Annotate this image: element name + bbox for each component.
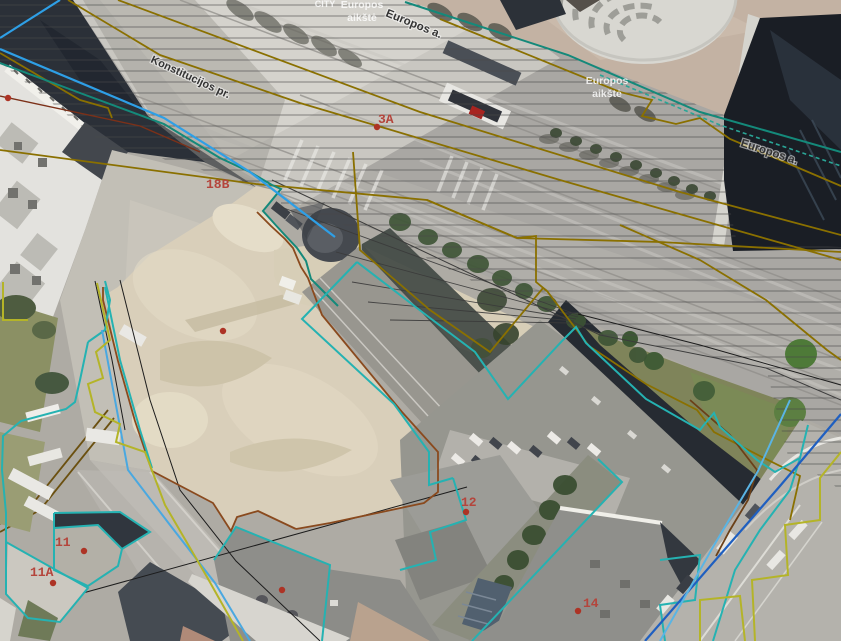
svg-text:Europos: Europos bbox=[341, 0, 384, 11]
svg-text:11: 11 bbox=[55, 535, 71, 550]
svg-text:12: 12 bbox=[461, 495, 477, 510]
svg-text:Europos: Europos bbox=[586, 75, 629, 87]
svg-text:11A: 11A bbox=[30, 565, 54, 580]
svg-text:aikštė: aikštė bbox=[592, 88, 622, 100]
svg-text:3A: 3A bbox=[378, 112, 394, 127]
svg-text:18B: 18B bbox=[206, 177, 230, 192]
svg-text:CITY: CITY bbox=[315, 0, 336, 9]
svg-text:aikštė: aikštė bbox=[347, 12, 377, 24]
svg-text:14: 14 bbox=[583, 596, 599, 611]
